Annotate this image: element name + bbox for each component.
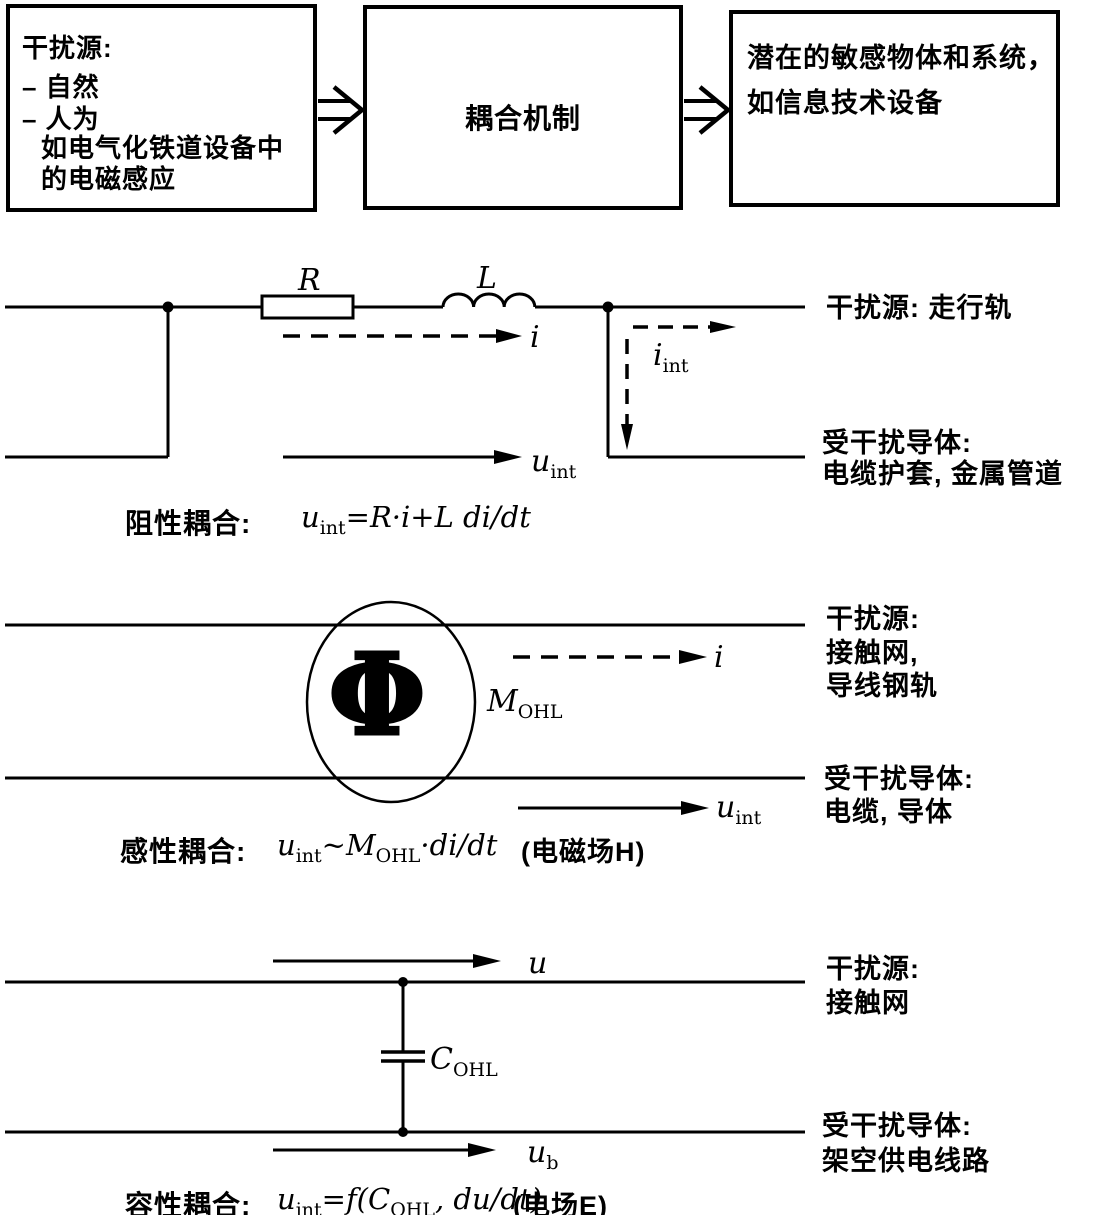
mutual-inductance-label: MOHL (487, 684, 562, 723)
capacitive-victim-label-line1: 受干扰导体: (822, 1104, 972, 1143)
magnetic-flux-phi-symbol: Φ (327, 640, 427, 752)
voltage-u-b-label: ub (527, 1135, 559, 1174)
inductive-formula: uint~MOHL·di/dt (277, 828, 497, 867)
voltage-u-int-label: uint (531, 444, 576, 483)
voltage-u-label: u (528, 946, 547, 981)
inductive-source-label-line3: 导线钢轨 (826, 664, 938, 703)
resistive-formula: uint=R·i+L di/dt (301, 500, 531, 539)
capacitance-label: COHL (430, 1042, 498, 1081)
voltage-u-int-label: uint (716, 790, 761, 829)
capacitive-formula-title: 容性耦合: (125, 1184, 251, 1215)
inductor-label: L (477, 261, 497, 296)
voltage-u-b-arrow (273, 1143, 496, 1157)
resistor-symbol (262, 296, 353, 318)
capacitor-symbol (381, 1052, 425, 1061)
voltage-u-int-arrow (518, 801, 709, 815)
resistive-conductor-lines (5, 307, 805, 457)
voltage-u-int-arrow (283, 450, 522, 464)
capacitive-victim-label-line2: 架空供电线路 (822, 1139, 990, 1178)
junction-dot-right (603, 302, 614, 313)
current-i-dashed-arrow (513, 650, 707, 664)
resistor-label: R (298, 263, 321, 298)
current-i-label: i (714, 640, 724, 675)
current-i-int-label: iint (653, 338, 689, 377)
flow-arrow-1 (318, 87, 362, 133)
inductive-victim-label-line2: 电缆, 导体 (824, 790, 953, 829)
inductive-formula-title: 感性耦合: (120, 830, 246, 870)
capacitive-formula-note: (电场E) (513, 1184, 608, 1215)
current-i-dashed-arrow (283, 329, 522, 343)
current-i-label: i (530, 320, 540, 355)
resistive-victim-label-line2: 电缆护套, 金属管道 (822, 452, 1063, 491)
voltage-u-arrow (273, 954, 501, 968)
emc-coupling-figure: 干扰源: – 自然 – 人为 如电气化铁道设备中 的电磁感应 耦合机制 潜在的敏… (0, 0, 1094, 1215)
capacitive-formula: uint=f(COHL, du/dt) (277, 1182, 542, 1215)
inductive-formula-note: (电磁场H) (521, 830, 645, 869)
resistive-source-label: 干扰源: 走行轨 (826, 286, 1013, 325)
flow-arrow-2 (684, 87, 728, 133)
resistive-formula-title: 阻性耦合: (125, 502, 251, 542)
flow-arrows-svg (0, 0, 1094, 220)
capacitive-source-label-line2: 接触网 (826, 981, 910, 1020)
junction-dot-top (398, 977, 408, 987)
junction-dot-left (163, 302, 174, 313)
